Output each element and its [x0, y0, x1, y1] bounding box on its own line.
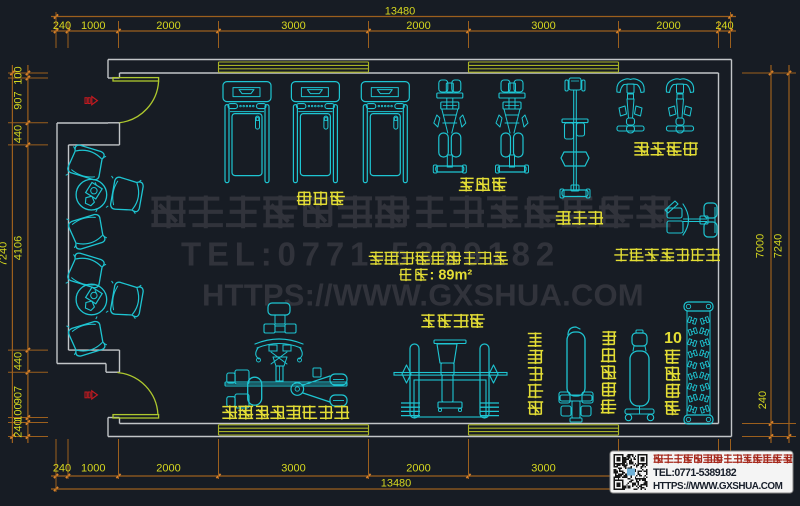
- svg-text:HTTPS://WWW.GXSHUA.COM: HTTPS://WWW.GXSHUA.COM: [653, 481, 783, 492]
- svg-text:13480: 13480: [381, 478, 412, 490]
- svg-text:: 89m²: : 89m²: [430, 268, 473, 284]
- svg-text:440: 440: [13, 125, 25, 143]
- svg-text:100: 100: [13, 403, 25, 421]
- svg-text:2000: 2000: [406, 463, 430, 475]
- svg-text:240: 240: [53, 463, 71, 475]
- svg-text:240: 240: [757, 391, 769, 409]
- svg-text:240: 240: [53, 20, 71, 32]
- svg-text:3000: 3000: [531, 20, 555, 32]
- svg-text:240: 240: [13, 419, 25, 437]
- svg-text:13480: 13480: [385, 6, 416, 18]
- svg-text:1000: 1000: [81, 463, 105, 475]
- svg-text:4106: 4106: [13, 236, 25, 260]
- svg-text:TEL:0771-5389182: TEL:0771-5389182: [181, 236, 560, 273]
- svg-text:2000: 2000: [156, 20, 180, 32]
- svg-text:TEL:0771-5389182: TEL:0771-5389182: [653, 467, 737, 479]
- svg-text:2000: 2000: [656, 20, 680, 32]
- svg-text:907: 907: [13, 386, 25, 404]
- svg-text:1000: 1000: [81, 20, 105, 32]
- svg-text:7240: 7240: [773, 234, 785, 258]
- svg-text:7240: 7240: [0, 242, 10, 266]
- svg-text:10: 10: [664, 330, 682, 347]
- svg-text:240: 240: [715, 20, 733, 32]
- svg-text:3000: 3000: [531, 463, 555, 475]
- svg-text:7000: 7000: [755, 234, 767, 258]
- svg-text:3000: 3000: [281, 463, 305, 475]
- svg-text:100: 100: [13, 66, 25, 84]
- svg-text:907: 907: [13, 91, 25, 109]
- svg-text:2000: 2000: [406, 20, 430, 32]
- svg-text:3000: 3000: [281, 20, 305, 32]
- svg-text:440: 440: [13, 352, 25, 370]
- svg-text:2000: 2000: [156, 463, 180, 475]
